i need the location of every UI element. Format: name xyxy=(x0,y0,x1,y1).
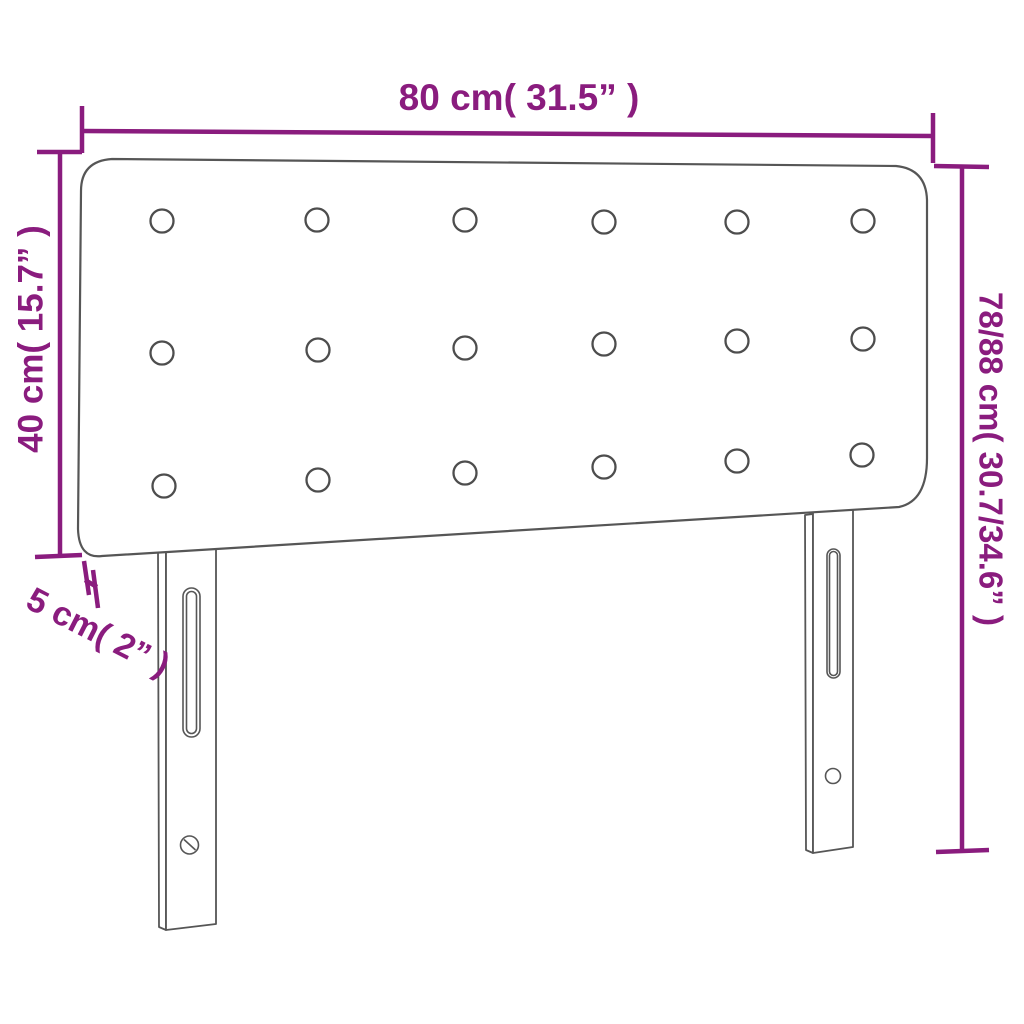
width-dimension-label: 80 cm( 31.5” ) xyxy=(399,77,640,118)
width-dimension-line xyxy=(82,131,933,136)
right-leg xyxy=(805,509,853,853)
total-height-dimension-label: 78/88 cm( 30.7/34.6” ) xyxy=(972,292,1009,626)
diagram-canvas: 80 cm( 31.5” ) 40 cm( 15.7” ) 78/88 cm( … xyxy=(0,0,1024,1024)
right-leg-front-face xyxy=(813,509,853,853)
headboard-panel xyxy=(78,159,927,556)
depth-dimension-tick-front xyxy=(84,561,89,595)
width-dimension: 80 cm( 31.5” ) xyxy=(82,77,933,163)
headboard-dimension-diagram: 80 cm( 31.5” ) 40 cm( 15.7” ) 78/88 cm( … xyxy=(0,0,1024,1024)
left-leg-side-face xyxy=(158,548,166,930)
panel-height-dimension-tick-bottom xyxy=(35,555,82,557)
panel-height-dimension: 40 cm( 15.7” ) xyxy=(11,152,82,557)
depth-dimension: 5 cm( 2” ) xyxy=(20,561,175,684)
left-leg xyxy=(158,543,216,930)
total-height-dimension: 78/88 cm( 30.7/34.6” ) xyxy=(934,166,1009,852)
panel-height-dimension-label: 40 cm( 15.7” ) xyxy=(11,225,50,453)
total-height-dimension-tick-top xyxy=(934,166,989,167)
right-leg-side-face xyxy=(805,514,813,853)
total-height-dimension-tick-bottom xyxy=(936,850,989,852)
depth-dimension-tick-back xyxy=(93,570,98,608)
